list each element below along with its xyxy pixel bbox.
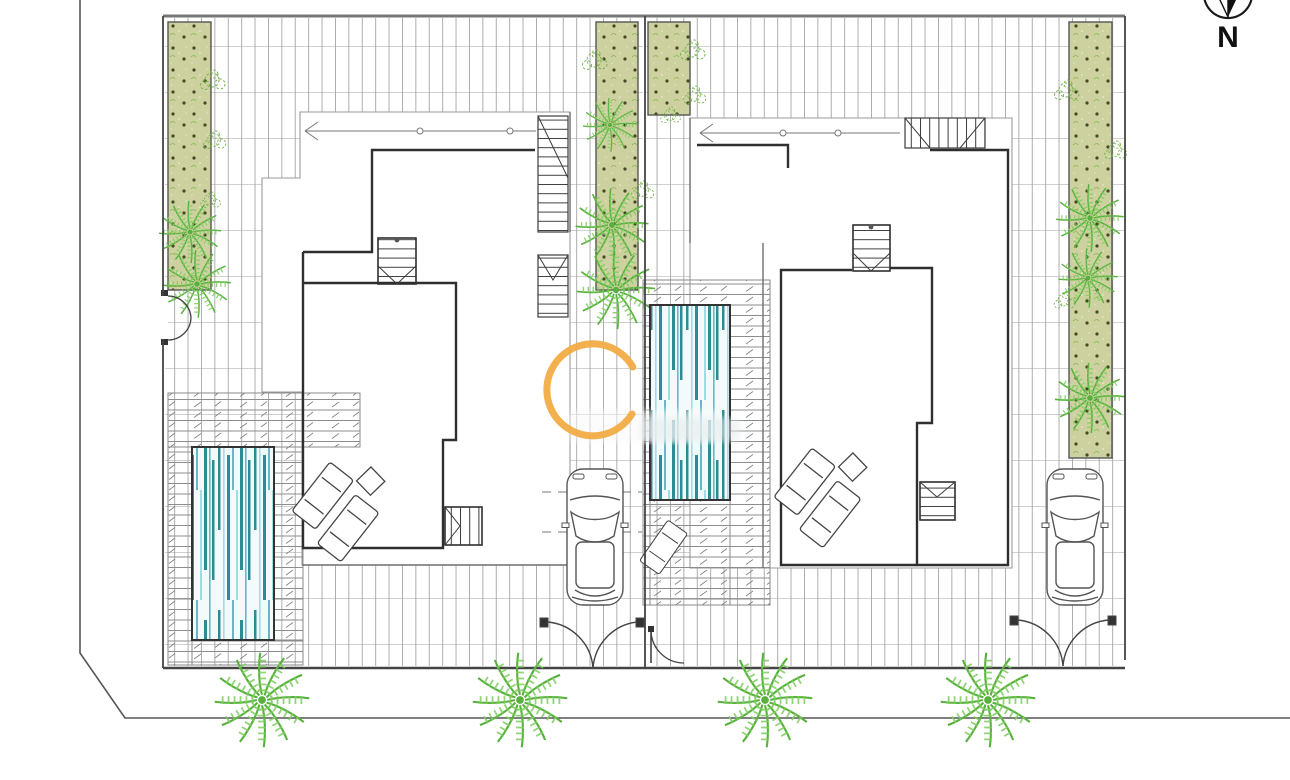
plot-villa-right xyxy=(640,18,1127,666)
exterior-stair-right-house xyxy=(905,118,985,148)
north-label: N xyxy=(1217,21,1239,54)
swimming-pool-left xyxy=(192,447,274,640)
parked-car-right xyxy=(1042,469,1108,605)
interior-stair-left-house xyxy=(378,238,416,284)
north-compass: N xyxy=(1204,0,1252,54)
swimming-pool-right xyxy=(650,305,730,500)
lower-stair-left-house xyxy=(445,507,482,545)
parked-car-left xyxy=(562,469,628,605)
site-plan-canvas: N xyxy=(0,0,1290,780)
site-plan-drawing: N xyxy=(0,0,1290,780)
lower-stair-right-house xyxy=(920,482,955,520)
interior-stair-right-house xyxy=(853,225,890,271)
exterior-stair-left-house xyxy=(538,116,568,317)
